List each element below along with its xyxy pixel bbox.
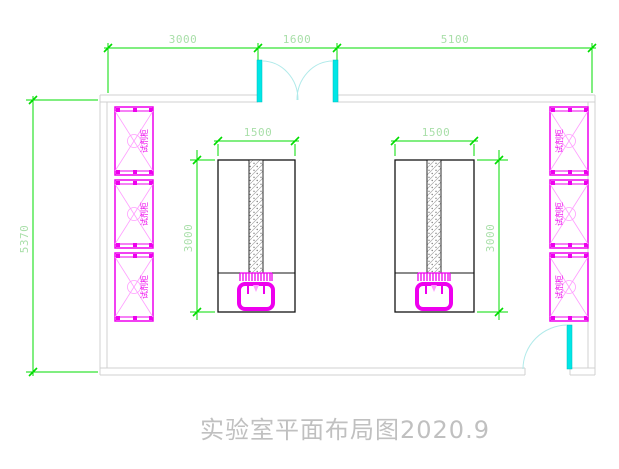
cabinet: 试剂柜	[115, 253, 153, 321]
cabinet-label: 试剂柜	[554, 275, 564, 299]
dim-label-1600-top: 1600	[283, 33, 312, 46]
door-leaf-right	[333, 60, 338, 102]
cabinet-label: 试剂柜	[139, 129, 149, 153]
left-dimension: 5370	[18, 96, 98, 376]
cabinet: 试剂柜	[115, 180, 153, 248]
cabinet-column-left: 试剂柜 试剂柜 试剂柜	[115, 107, 153, 321]
top-dimension-extensions	[108, 43, 592, 93]
left-wall	[100, 95, 107, 375]
reagent-shelf-hatched	[427, 160, 441, 273]
dim-label-1500-right-bench: 1500	[422, 126, 451, 139]
double-door-top	[257, 60, 338, 102]
dim-label-5100-top: 5100	[441, 33, 470, 46]
drawing-title: 实验室平面布局图2020.9	[200, 416, 490, 444]
door-swing-arc	[523, 325, 567, 369]
lab-bench-right	[395, 160, 474, 312]
cabinet: 试剂柜	[550, 107, 588, 175]
door-leaf	[567, 325, 572, 369]
dim-label-1500-left-bench: 1500	[244, 126, 273, 139]
door-swing-arc-left	[262, 61, 298, 100]
left-bench-width-extensions	[218, 144, 295, 156]
cabinet-label: 试剂柜	[554, 202, 564, 226]
dim-label-5370-left: 5370	[18, 225, 31, 254]
cabinet: 试剂柜	[550, 253, 588, 321]
cabinet-column-right: 试剂柜 试剂柜 试剂柜	[550, 107, 588, 321]
door-swing-arc-right	[297, 61, 333, 100]
lab-bench-left	[218, 160, 295, 312]
top-dimension-chain: 3000 1600 5100	[104, 33, 596, 93]
room-walls	[100, 95, 595, 375]
left-dimension-extensions	[26, 100, 98, 372]
top-wall	[100, 95, 595, 102]
door-leaf-left	[257, 60, 262, 102]
dim-label-3000-top: 3000	[169, 33, 198, 46]
door-bottom-right	[523, 325, 572, 369]
cabinet-label: 试剂柜	[139, 202, 149, 226]
cabinet: 试剂柜	[115, 107, 153, 175]
cabinet: 试剂柜	[550, 180, 588, 248]
dim-label-3000-right-bench: 3000	[484, 224, 497, 253]
cabinet-label: 试剂柜	[139, 275, 149, 299]
bottom-wall	[100, 368, 595, 375]
right-wall	[588, 95, 595, 375]
right-bench-width-extensions	[395, 144, 474, 156]
floor-plan-canvas: 3000 1600 5100 5370 1500 3000 1500 3000	[0, 0, 619, 469]
dim-label-3000-left-bench: 3000	[182, 224, 195, 253]
reagent-shelf-hatched	[249, 160, 263, 273]
cabinet-label: 试剂柜	[554, 129, 564, 153]
floor-plan-drawing: 3000 1600 5100 5370 1500 3000 1500 3000	[0, 0, 619, 469]
